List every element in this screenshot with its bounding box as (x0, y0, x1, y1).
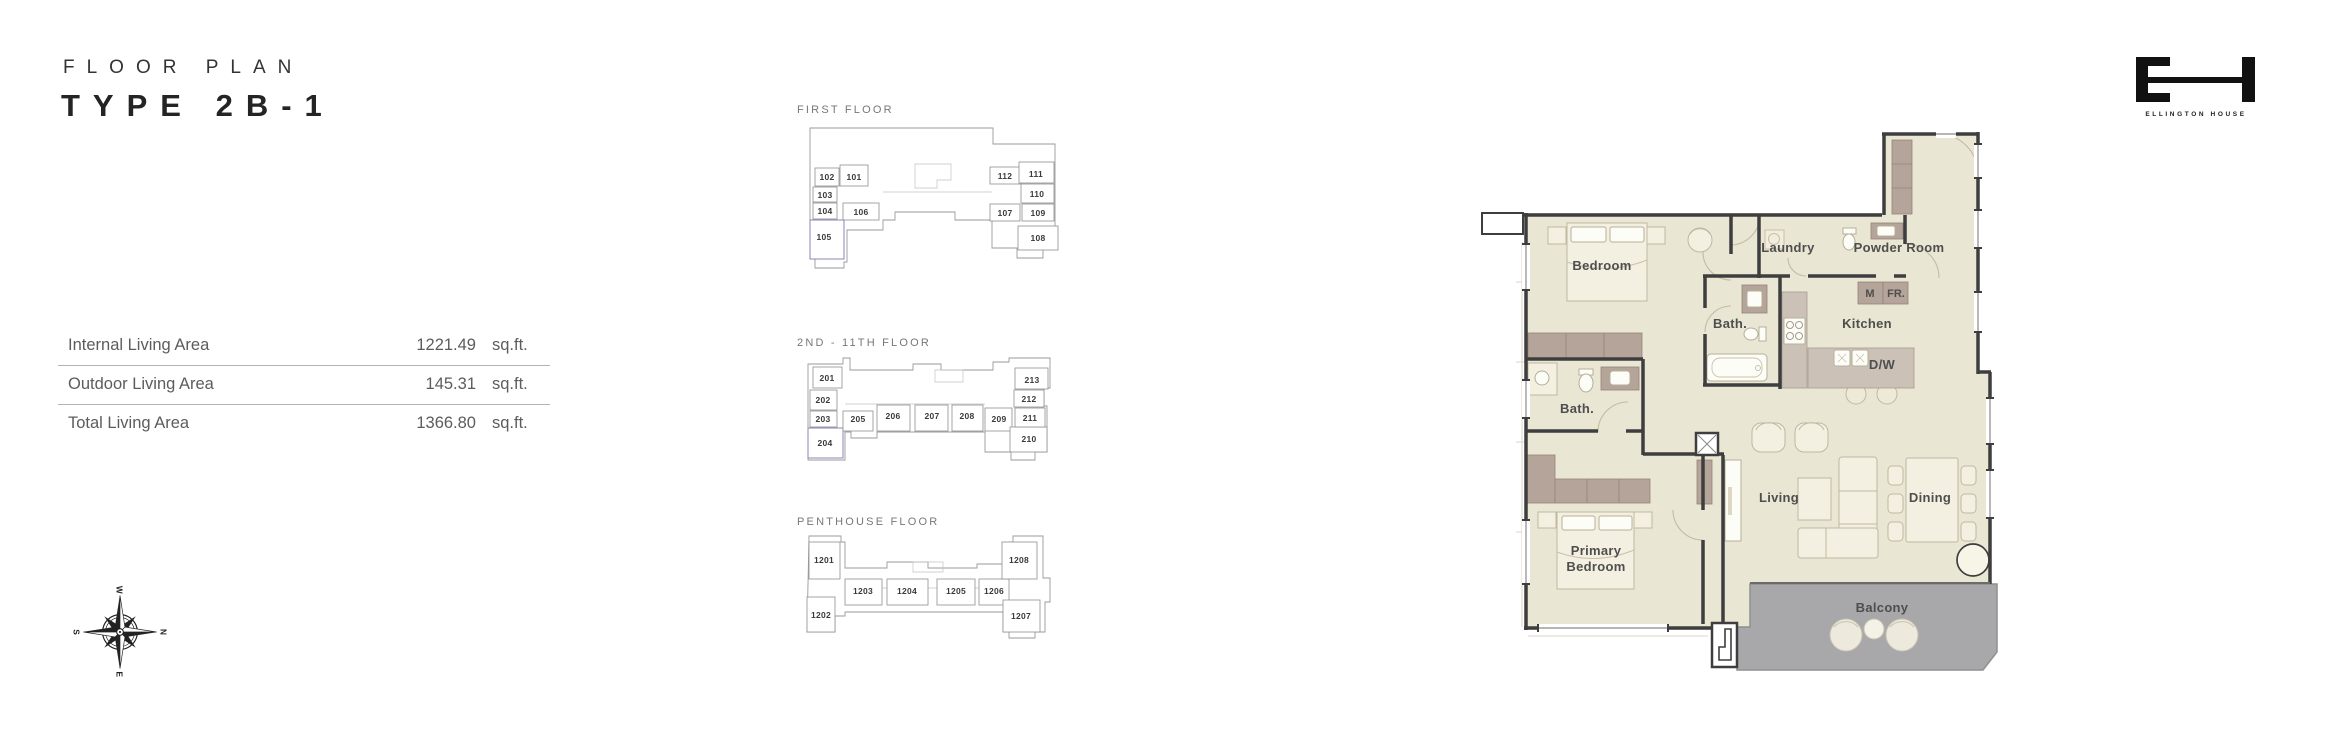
compass-east-label: E (115, 671, 124, 677)
label-bath-left: Bath. (1560, 401, 1594, 416)
unit-1208: 1208 (1009, 555, 1029, 565)
keyplan-penthouse-title: PENTHOUSE FLOOR (797, 516, 939, 528)
unit-102: 102 (819, 172, 834, 182)
dining-chair (1888, 494, 1903, 513)
label-microwave: M (1865, 288, 1874, 300)
eh-monogram-icon (2136, 57, 2255, 102)
dining-chair (1888, 466, 1903, 485)
area-value: 1221.49 (381, 336, 476, 355)
balcony-door-frame (1712, 623, 1737, 667)
bath-sink (1610, 371, 1630, 385)
area-table: Internal Living Area 1221.49 sq.ft. Outd… (58, 327, 550, 443)
unit-107: 107 (997, 208, 1012, 218)
label-bath-center: Bath. (1713, 316, 1747, 331)
unit-205: 205 (850, 414, 865, 424)
compass-north-label: N (159, 629, 168, 635)
unit-1201: 1201 (814, 555, 834, 565)
unit-202: 202 (815, 395, 830, 405)
nightstand (1634, 512, 1652, 528)
sofa-chaise (1798, 528, 1878, 558)
balcony-table (1864, 619, 1884, 639)
window-ledge (1482, 213, 1523, 234)
unit-106: 106 (853, 207, 868, 217)
page-title: TYPE 2B-1 (61, 88, 335, 124)
pillow (1610, 227, 1644, 242)
unit-103: 103 (817, 190, 832, 200)
round-table (1957, 544, 1989, 576)
unit-110: 110 (1030, 189, 1045, 199)
unit-211: 211 (1023, 413, 1038, 423)
keyplan-first-title: FIRST FLOOR (797, 104, 894, 116)
unit-203: 203 (815, 414, 830, 424)
table-row: Internal Living Area 1221.49 sq.ft. (58, 327, 550, 365)
powder-sink (1877, 226, 1895, 236)
label-dishwasher: D/W (1869, 357, 1896, 372)
nightstand (1538, 512, 1556, 528)
table-row: Total Living Area 1366.80 sq.ft. (58, 404, 550, 443)
compass-rose: N E S W (72, 584, 168, 680)
unit-209: 209 (991, 414, 1006, 424)
unit-210: 210 (1021, 434, 1036, 444)
label-primary-line1: Primary (1571, 543, 1622, 558)
unit-201: 201 (819, 373, 834, 383)
logo-wordmark: ELLINGTON HOUSE (2145, 111, 2246, 118)
ellington-house-logo: ELLINGTON HOUSE (2136, 57, 2256, 121)
keyplan-second-title: 2ND - 11TH FLOOR (797, 337, 931, 349)
bath-sink (1747, 291, 1762, 307)
unit-212: 212 (1021, 394, 1036, 404)
nightstand (1647, 227, 1665, 244)
unit-208: 208 (959, 411, 974, 421)
balcony-chair (1886, 619, 1918, 651)
unit-101: 101 (846, 172, 861, 182)
table-row: Outdoor Living Area 145.31 sq.ft. (58, 365, 550, 404)
label-laundry: Laundry (1761, 240, 1815, 255)
unit-204-highlighted: 204 (817, 438, 832, 448)
label-fridge: FR. (1887, 288, 1905, 300)
dining-chair (1888, 522, 1903, 541)
unit-112: 112 (998, 171, 1013, 181)
dining-chair (1961, 522, 1976, 541)
elevator-shaft (1696, 433, 1718, 455)
floor-plan-page: FLOOR PLAN TYPE 2B-1 Internal Living Are… (0, 0, 2337, 745)
unit-213: 213 (1024, 375, 1039, 385)
label-living: Living (1759, 490, 1799, 505)
unit-floor-plan: Bedroom Laundry Powder Room M FR. Kitche… (1478, 82, 2018, 682)
unit-206: 206 (885, 411, 900, 421)
unit-1206: 1206 (984, 586, 1004, 596)
keyplan-penthouse: 1201 1202 1203 1204 1205 1206 1207 1208 (795, 530, 1085, 660)
area-value: 1366.80 (381, 414, 476, 433)
pillow (1562, 516, 1595, 530)
area-label: Internal Living Area (68, 336, 381, 355)
page-eyebrow: FLOOR PLAN (63, 57, 303, 79)
label-balcony: Balcony (1856, 600, 1909, 615)
unit-111: 111 (1029, 169, 1043, 179)
compass-west-label: W (115, 586, 124, 594)
tv-console (1725, 460, 1741, 541)
dining-chair (1961, 494, 1976, 513)
toilet (1579, 374, 1593, 392)
unit-1204: 1204 (897, 586, 917, 596)
label-bedroom: Bedroom (1572, 258, 1631, 273)
pillow (1599, 516, 1632, 530)
area-value: 145.31 (381, 375, 476, 394)
area-unit: sq.ft. (476, 414, 550, 433)
entry-closet (1892, 140, 1912, 214)
coffee-table (1798, 478, 1831, 520)
compass-south-label: S (72, 629, 81, 635)
label-powder-room: Powder Room (1854, 240, 1945, 255)
area-unit: sq.ft. (476, 336, 550, 355)
nightstand (1548, 227, 1566, 244)
balcony-chair (1830, 619, 1862, 651)
unit-1203: 1203 (853, 586, 873, 596)
area-label: Total Living Area (68, 414, 381, 433)
unit-1207: 1207 (1011, 611, 1031, 621)
label-primary-line2: Bedroom (1566, 559, 1625, 574)
stove (1784, 318, 1805, 344)
keyplan-second: 201 202 203 204 205 206 207 208 209 210 … (795, 352, 1085, 502)
unit-1205: 1205 (946, 586, 966, 596)
area-unit: sq.ft. (476, 375, 550, 394)
unit-105-highlighted: 105 (816, 232, 831, 242)
unit-108: 108 (1030, 233, 1045, 243)
unit-207: 207 (924, 411, 939, 421)
label-dining: Dining (1909, 490, 1951, 505)
pillow (1571, 227, 1606, 242)
keyplan-first: 102 101 103 104 106 105 112 111 110 107 … (795, 122, 1085, 282)
label-kitchen: Kitchen (1842, 316, 1892, 331)
dining-chair (1961, 466, 1976, 485)
unit-1202: 1202 (811, 610, 831, 620)
unit-109: 109 (1030, 208, 1045, 218)
unit-104: 104 (817, 206, 832, 216)
area-label: Outdoor Living Area (68, 375, 381, 394)
